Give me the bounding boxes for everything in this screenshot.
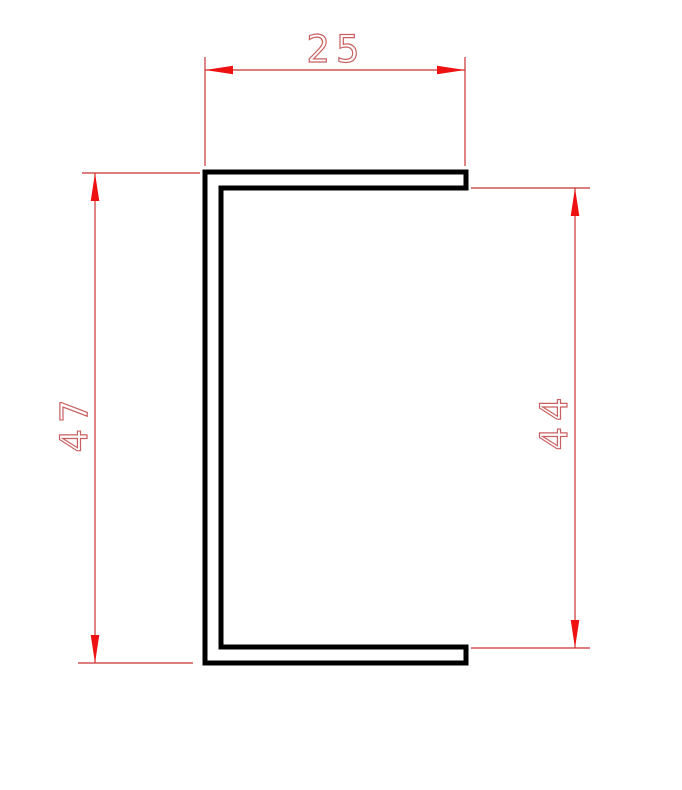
arrowhead-right-icon <box>437 66 465 75</box>
arrowhead-down-icon <box>571 620 580 648</box>
dimension-left-height: 47 <box>53 173 200 663</box>
dimension-value-right-inner-height: 44 <box>533 391 576 450</box>
dimension-right-inner-height: 44 <box>471 188 590 648</box>
arrowhead-up-icon <box>571 188 580 216</box>
arrowhead-up-icon <box>91 173 100 201</box>
c-channel-profile-outline <box>205 172 466 663</box>
dimension-value-top-width: 25 <box>306 28 365 71</box>
cad-drawing: 25 47 44 <box>0 0 682 790</box>
arrowhead-down-icon <box>91 635 100 663</box>
drawing-canvas: 25 47 44 <box>0 0 682 790</box>
dimension-top-width: 25 <box>205 28 465 166</box>
arrowhead-left-icon <box>205 66 233 75</box>
dimension-value-left-height: 47 <box>53 393 96 452</box>
